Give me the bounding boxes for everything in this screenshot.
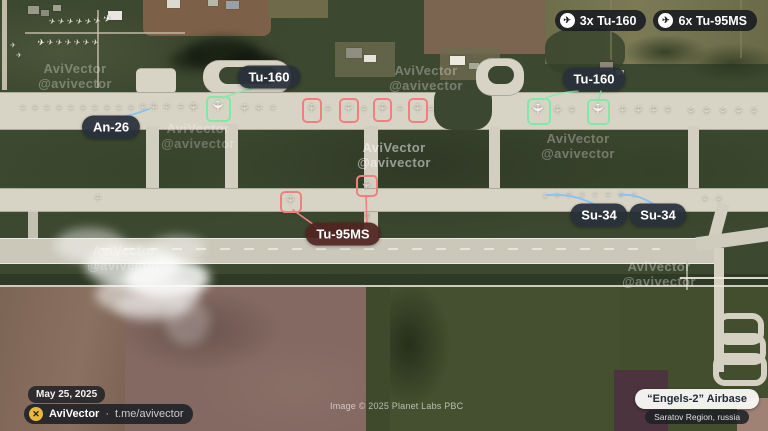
aircraft: ✈ <box>714 196 722 203</box>
tu160-highlight-box <box>206 96 231 122</box>
aircraft: ✈ <box>126 105 134 112</box>
base-name: “Engels-2” Airbase <box>635 389 759 409</box>
base-info-card: “Engels-2” Airbase Saratov Region, russi… <box>635 389 759 424</box>
aircraft: ✈ <box>530 103 545 116</box>
aircraft: ✈ <box>604 192 611 198</box>
dispersal-loop <box>716 313 764 345</box>
dark-smoke <box>225 52 280 78</box>
aircraft: ✈ <box>238 103 249 112</box>
aircraft: ✈ <box>93 194 102 202</box>
watermark: AviVector@avivector <box>622 259 696 289</box>
badge-label: 6x Tu-95MS <box>678 14 747 28</box>
tree-cluster <box>620 30 768 85</box>
watermark: AviVector@avivector <box>389 63 463 93</box>
aircraft: ✈ <box>590 103 605 116</box>
right-taxiway <box>714 248 724 372</box>
building <box>469 63 479 69</box>
road <box>25 32 185 34</box>
aircraft: ✈ <box>138 103 147 111</box>
aircraft: ✈ <box>18 105 26 112</box>
cloud <box>150 235 205 261</box>
aircraft: ✈ <box>591 192 598 198</box>
author-handle: t.me/avivector <box>115 408 183 420</box>
badge-tu160-count: ✈ 3x Tu-160 <box>555 10 647 31</box>
badge-label: 3x Tu-160 <box>580 14 637 28</box>
aircraft: ✈ <box>187 102 199 112</box>
field-patch <box>143 0 271 36</box>
apron-infield-notch <box>434 82 492 130</box>
aircraft: ✈ <box>564 192 572 199</box>
aircraft: ✈ <box>553 192 560 198</box>
plane-icon: ✈ <box>560 13 575 28</box>
building <box>226 1 239 9</box>
taxiway-connector <box>146 126 159 190</box>
plane-icon: ✈ <box>658 13 673 28</box>
credit-separator: · <box>105 408 109 420</box>
watermark: AviVector@avivector <box>161 121 235 151</box>
aircraft: ✈ <box>42 105 50 112</box>
building <box>346 48 362 58</box>
aircraft: ✈ <box>114 105 122 112</box>
tu95ms-highlight-box <box>356 175 378 197</box>
middle-apron <box>0 188 768 212</box>
aircraft: ✈ <box>616 192 624 199</box>
taxiway-connector <box>28 210 38 238</box>
aircraft: ✈ <box>48 17 57 26</box>
building <box>108 11 122 20</box>
road <box>97 10 99 88</box>
aircraft: ✈ <box>700 107 710 115</box>
leader-line <box>547 195 597 206</box>
watermark: AviVector@avivector <box>541 131 615 161</box>
tu95ms-highlight-box <box>408 98 428 123</box>
aircraft: ✈ <box>37 38 46 48</box>
taxiway-connector <box>688 126 699 190</box>
annotated-satellite-image: AviVector@avivectorAviVector@avivectorAv… <box>0 0 768 431</box>
aircraft: ✈ <box>541 193 548 199</box>
label-an26: An-26 <box>82 116 140 139</box>
leader-line <box>223 89 252 98</box>
road <box>680 277 768 279</box>
leader-line <box>116 109 149 119</box>
aircraft: ✈ <box>663 106 672 114</box>
highlight-boxes <box>0 0 768 431</box>
aircraft: ✈ <box>567 106 576 114</box>
badge-tu95ms-count: ✈ 6x Tu-95MS <box>653 10 757 31</box>
aircraft: ✈ <box>376 103 387 112</box>
leader-line <box>366 196 367 224</box>
aircraft: ✈ <box>426 106 434 113</box>
parking-pad <box>136 68 176 94</box>
aircraft: ✈ <box>55 38 63 47</box>
tu160-highlight-box <box>527 98 551 125</box>
aircraft: ✈ <box>66 105 74 112</box>
tu95ms-highlight-box <box>339 98 359 123</box>
aircraft: ✈ <box>210 100 225 113</box>
aircraft: ✈ <box>30 105 38 112</box>
aircraft: ✈ <box>578 192 585 198</box>
satellite-terrain <box>0 0 768 431</box>
aircraft: ✈ <box>102 14 113 26</box>
top-apron <box>0 92 768 130</box>
label-tu160-left: Tu-160 <box>238 66 301 89</box>
runway <box>0 238 718 264</box>
aircraft: ✈ <box>46 38 54 47</box>
aircraft-layer: ✈✈✈✈✈✈✈✈✈✈✈✈✈✈✈✈✈✈✈✈✈✈✈✈✈✈✈✈✈✈✈✈✈✈✈✈✈✈✈✈… <box>0 0 768 431</box>
aircraft: ✈ <box>102 105 110 112</box>
avivector-logo-icon: ✕ <box>29 407 43 421</box>
building <box>208 0 218 6</box>
author-credit: ✕ AviVector · t.me/avivector <box>24 404 193 424</box>
watermark: AviVector@avivector <box>87 243 161 273</box>
label-tu95ms: Tu-95MS <box>305 223 380 246</box>
building <box>167 0 180 8</box>
author-brand: AviVector <box>49 408 99 420</box>
aircraft: ✈ <box>359 106 367 113</box>
building <box>450 56 465 65</box>
taxiway-loop <box>203 60 291 94</box>
tree-band <box>0 274 768 287</box>
aircraft: ✈ <box>176 104 184 111</box>
aircraft: ✈ <box>91 38 99 47</box>
cloud <box>95 275 200 315</box>
taxiway-loop <box>476 58 524 96</box>
aircraft-count-badges: ✈ 3x Tu-160 ✈ 6x Tu-95MS <box>555 10 757 31</box>
building <box>41 10 49 16</box>
tu95ms-highlight-box <box>373 98 392 122</box>
aircraft: ✈ <box>411 103 422 112</box>
aircraft: ✈ <box>73 38 81 47</box>
aircraft: ✈ <box>700 196 708 203</box>
cloud <box>165 300 210 345</box>
aircraft: ✈ <box>305 103 316 112</box>
aircraft: ✈ <box>323 106 331 113</box>
building <box>364 55 376 62</box>
tu95ms-highlight-box <box>280 191 302 213</box>
aircraft: ✈ <box>362 210 375 223</box>
field-patch <box>440 48 500 80</box>
aircraft: ✈ <box>732 107 742 115</box>
aircraft: ✈ <box>147 103 157 111</box>
date-badge: May 25, 2025 <box>28 386 105 403</box>
cloud <box>115 292 190 322</box>
tu160-highlight-box <box>587 99 610 125</box>
aircraft: ✈ <box>342 103 353 112</box>
tu95ms-highlight-box <box>302 98 322 123</box>
aircraft: ✈ <box>686 107 695 115</box>
field-patch <box>335 42 395 77</box>
cloud <box>85 245 180 287</box>
aircraft: ✈ <box>718 107 727 115</box>
watermark: AviVector@avivector <box>357 140 431 170</box>
aircraft: ✈ <box>749 107 758 115</box>
taxiway-connector <box>707 202 729 246</box>
tree-cluster <box>545 28 625 76</box>
aircraft: ✈ <box>254 104 263 112</box>
image-credit: Image © 2025 Planet Labs PBC <box>330 401 463 411</box>
aircraft: ✈ <box>64 38 72 47</box>
taxiway-connector <box>364 126 378 238</box>
aircraft: ✈ <box>647 106 657 114</box>
dispersal-loop <box>713 353 767 386</box>
dispersal-loop <box>714 333 766 365</box>
aircraft: ✈ <box>66 17 75 26</box>
field-patch <box>424 0 549 54</box>
building <box>28 6 39 14</box>
road <box>0 285 768 287</box>
runway-centerline <box>100 248 660 250</box>
road <box>686 258 688 290</box>
aircraft: ✈ <box>630 192 637 198</box>
label-su34-left: Su-34 <box>570 204 627 227</box>
building <box>616 70 624 75</box>
dark-smoke <box>185 38 260 70</box>
aircraft: ✈ <box>551 105 562 114</box>
aircraft: ✈ <box>54 105 62 112</box>
aircraft: ✈ <box>616 106 626 114</box>
label-tu160-right: Tu-160 <box>563 68 626 91</box>
leader-line <box>598 91 601 101</box>
watermark: AviVector@avivector <box>38 61 112 91</box>
leader-lines <box>0 0 768 431</box>
taxiway-connector <box>225 124 238 190</box>
aircraft: ✈ <box>82 38 90 47</box>
aircraft: ✈ <box>16 53 22 60</box>
aircraft: ✈ <box>78 105 86 112</box>
leader-line <box>543 91 578 100</box>
building <box>53 5 61 11</box>
leader-line <box>293 210 317 227</box>
base-region: Saratov Region, russia <box>645 410 749 424</box>
cloud <box>125 258 210 298</box>
aircraft: ✈ <box>162 103 171 111</box>
watermark-layer: AviVector@avivectorAviVector@avivectorAv… <box>0 0 768 431</box>
leader-line <box>620 195 656 206</box>
aircraft: ✈ <box>92 16 102 27</box>
runway-exit-diagonal <box>695 227 768 251</box>
aircraft: ✈ <box>395 106 403 113</box>
cloud <box>55 228 125 262</box>
taxiway-connector <box>489 126 500 190</box>
aircraft: ✈ <box>284 195 295 204</box>
map-labels: Tu-160An-26Tu-160Tu-95MSSu-34Su-34 <box>0 0 768 431</box>
aircraft: ✈ <box>268 105 276 112</box>
aircraft: ✈ <box>360 180 371 189</box>
aircraft: ✈ <box>10 43 16 50</box>
aircraft: ✈ <box>90 105 98 112</box>
aircraft: ✈ <box>75 17 84 26</box>
aircraft: ✈ <box>632 105 643 114</box>
building <box>600 62 613 71</box>
dark-smoke <box>170 50 210 70</box>
field-patch <box>268 0 328 18</box>
road <box>2 0 7 90</box>
aircraft: ✈ <box>57 17 66 26</box>
taxiway-loop-infield <box>219 67 277 84</box>
taxiway-loop-infield <box>488 66 514 84</box>
aircraft: ✈ <box>84 17 93 26</box>
label-su34-right: Su-34 <box>629 204 686 227</box>
